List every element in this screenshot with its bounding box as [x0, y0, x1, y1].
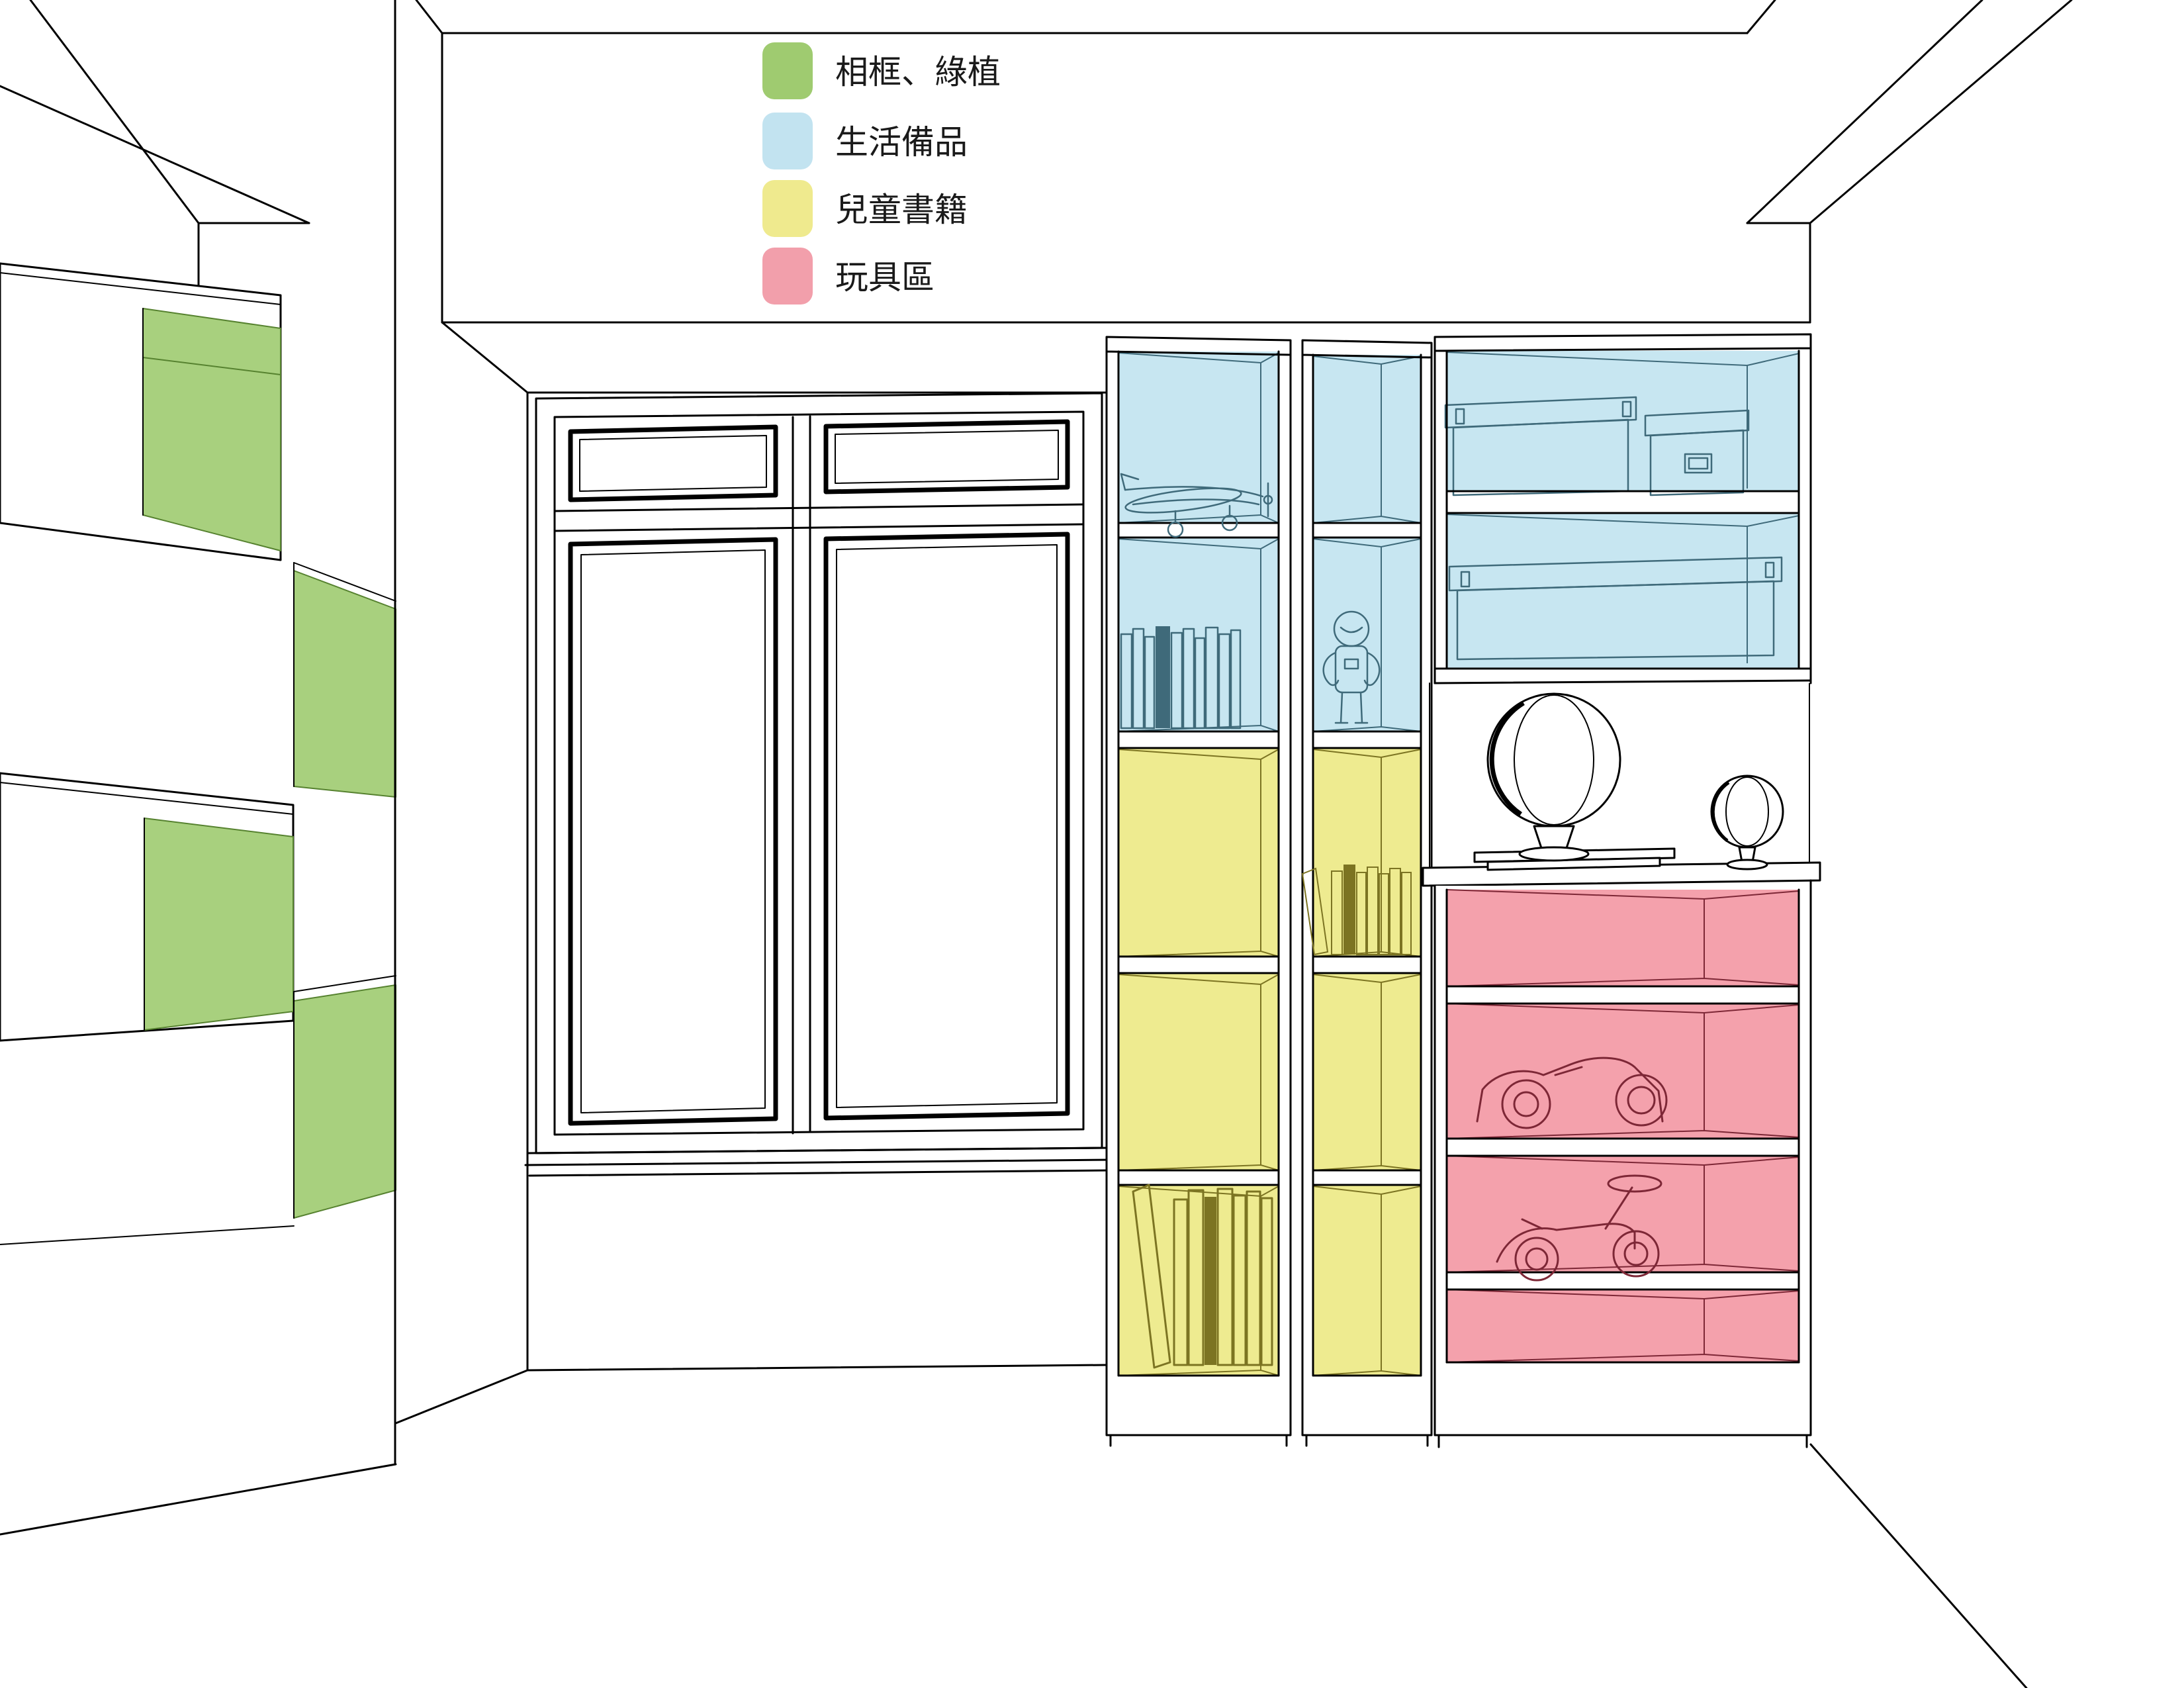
colA-yellow-2 [1118, 973, 1279, 1170]
left-wall-top-edge [0, 86, 309, 223]
colB-blue-1 [1313, 355, 1421, 523]
shelf-box-1 [0, 263, 281, 560]
shelf-box-2 [294, 563, 396, 797]
legend-swatch-blue [762, 113, 813, 169]
globe-large [1488, 694, 1620, 861]
box3-green-panel [144, 818, 293, 1030]
box4-green-panel [294, 985, 396, 1218]
left-unit-bottom-edge [0, 1464, 396, 1534]
right-floor-corner [1811, 1444, 2026, 1688]
ceiling-corner-left [416, 0, 442, 33]
colA-yellow-3 [1118, 1185, 1279, 1376]
window-sill [525, 1148, 1115, 1176]
colB-yellow-2 [1313, 973, 1421, 1170]
left-floor-corner [396, 1370, 527, 1423]
legend-label-daily-supplies: 生活備品 [835, 124, 968, 161]
legend-label-children-books: 兒童書籍 [835, 191, 968, 228]
legend-item-daily-supplies: 生活備品 [762, 113, 968, 169]
colB-yellow-3 [1313, 1185, 1421, 1376]
box1-green-panel [143, 308, 281, 551]
pink-shelf-1 [1447, 890, 1799, 986]
legend-item-toy-area: 玩具區 [762, 248, 934, 305]
bookshelf-column-a [1107, 337, 1291, 1446]
colA-yellow-1 [1118, 748, 1279, 957]
legend-item-frames-plants: 相框、綠植 [762, 42, 1001, 99]
right-beam-top-edge [1747, 0, 1982, 223]
colA-blue-1 [1118, 352, 1279, 523]
cabinet-blue-2 [1447, 513, 1799, 669]
back-wall-floor-line [527, 1365, 1107, 1370]
bulkhead-underside-left [442, 322, 527, 393]
legend-item-children-books: 兒童書籍 [762, 180, 968, 237]
legend: 相框、綠植 生活備品 兒童書籍 玩具區 [762, 42, 1001, 305]
legend-swatch-pink [762, 248, 813, 305]
shelf-box-3 [0, 773, 293, 1041]
box2-green-panel [294, 571, 396, 797]
right-cabinet-unit [1423, 334, 1820, 1447]
legend-swatch-green [762, 42, 813, 99]
box4-bottom-line [0, 1226, 294, 1244]
legend-label-toy-area: 玩具區 [835, 259, 934, 296]
colA-blue-2 [1118, 538, 1279, 731]
ceiling-corner-right [1747, 0, 1775, 33]
globe-small [1711, 776, 1783, 869]
window [525, 393, 1115, 1176]
pink-shelf-4 [1447, 1289, 1799, 1362]
bookshelf-column-b [1302, 340, 1432, 1446]
room-rendering: 相框、綠植 生活備品 兒童書籍 玩具區 [0, 0, 2184, 1688]
right-wall-top-edge [1810, 0, 2071, 223]
legend-label-frames-plants: 相框、綠植 [835, 54, 1001, 91]
legend-swatch-yellow [762, 180, 813, 237]
toy-shelves [1435, 880, 1811, 1447]
